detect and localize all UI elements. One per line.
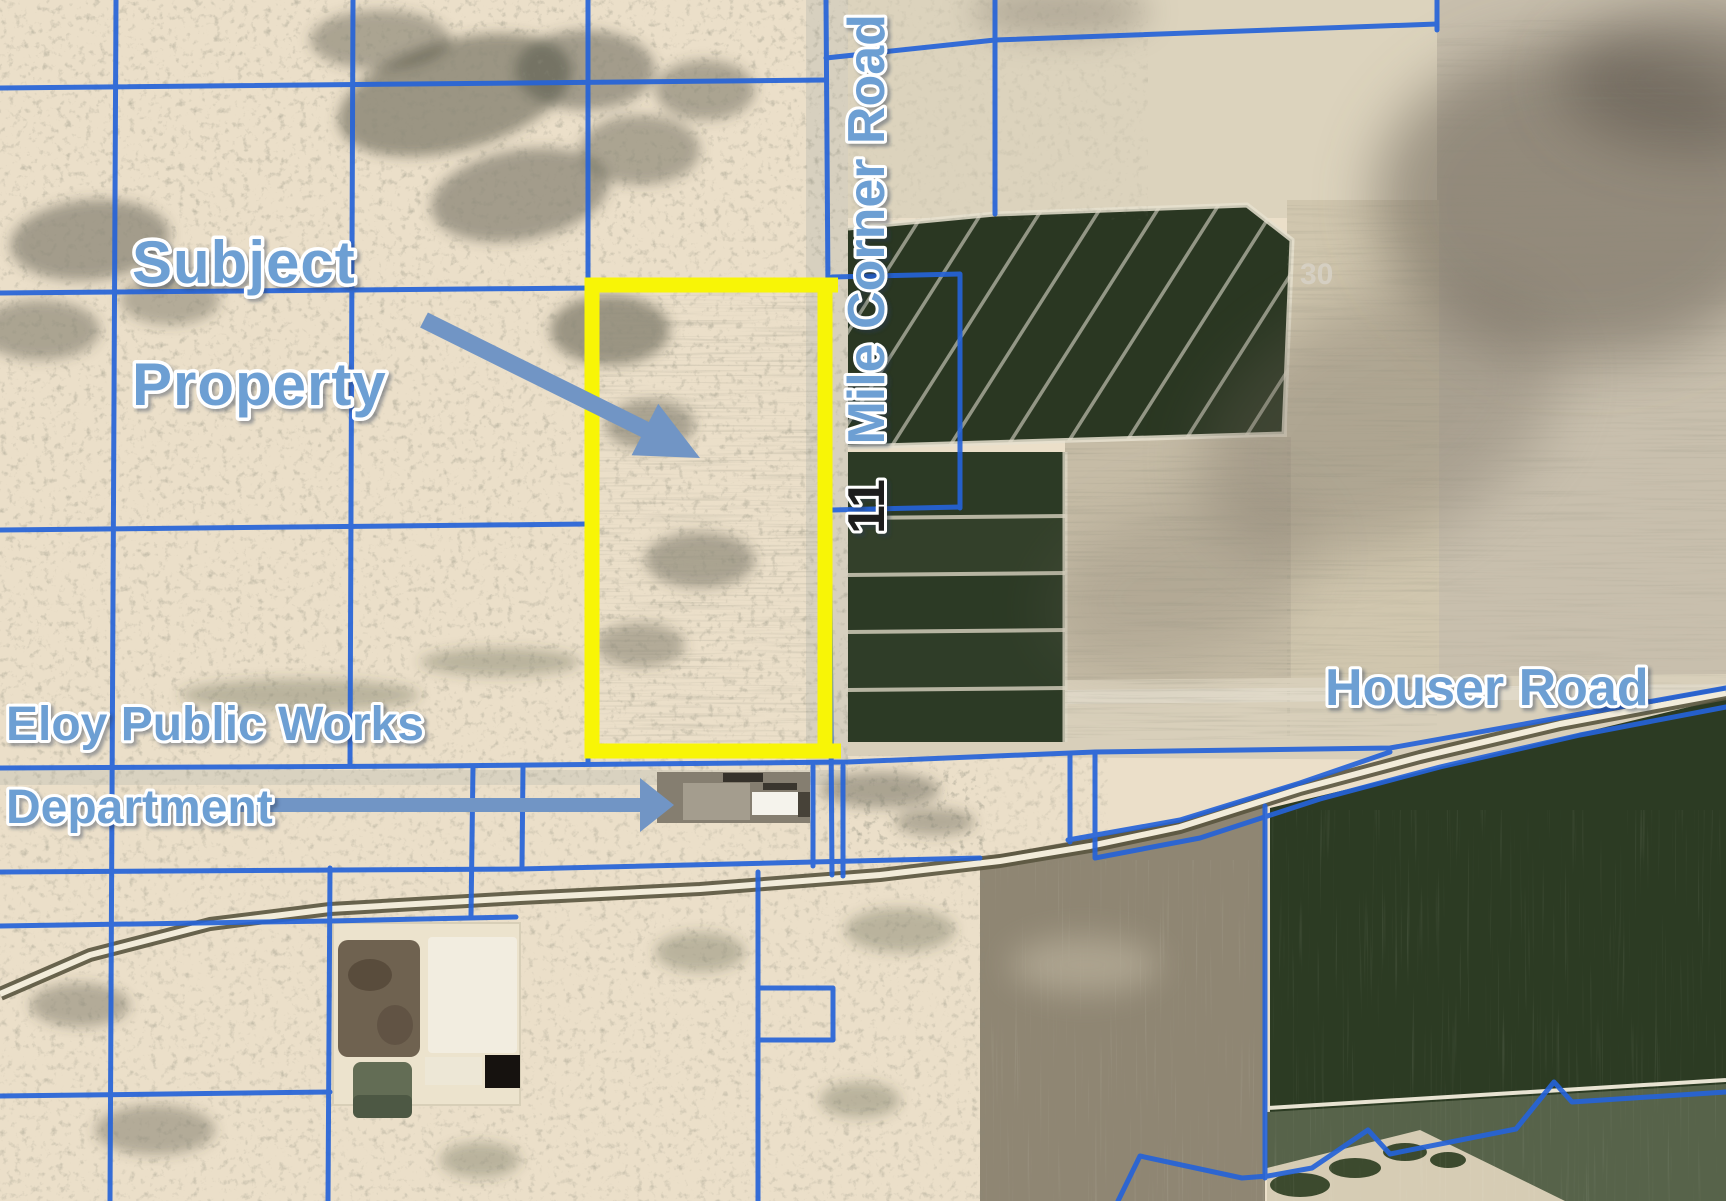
houser-road-label: Houser Road	[1325, 659, 1649, 717]
retention-ponds	[333, 923, 520, 1118]
public-works-buildings	[657, 772, 810, 823]
public-works-label-line1: Eloy Public Works	[6, 698, 424, 751]
subject-property-label-line1: Subject	[132, 229, 356, 296]
public-works-label-line2: Department	[6, 781, 273, 834]
aerial-parcel-map: 30 Subject Property Eloy Public Works De…	[0, 0, 1726, 1201]
mile-corner-road-name: Mile Corner Road	[838, 14, 896, 445]
satellite-map: 30 Subject Property Eloy Public Works De…	[0, 0, 1726, 1201]
mile-corner-road-number: 11	[838, 479, 896, 534]
section-number-label: 30	[1300, 258, 1333, 291]
subject-property-label-line2: Property	[132, 351, 387, 418]
